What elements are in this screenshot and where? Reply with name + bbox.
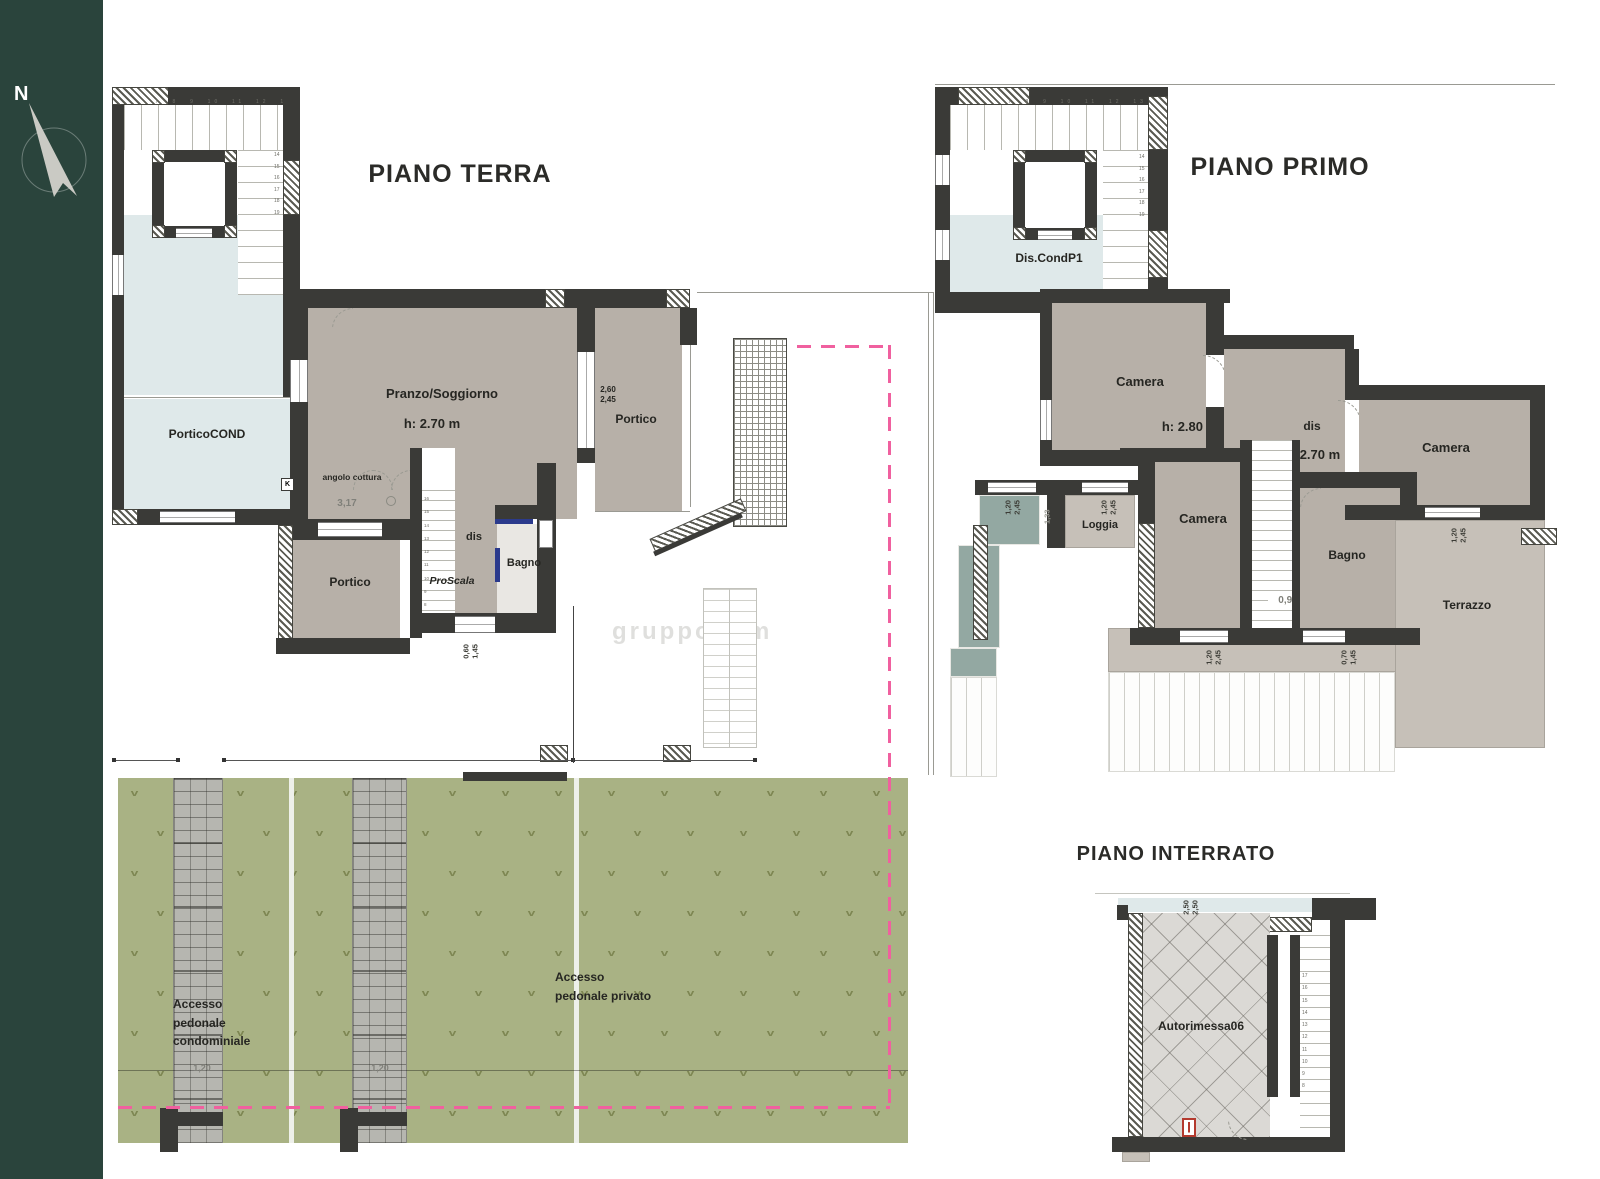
pillar-hatched [1521, 528, 1557, 545]
window [988, 482, 1036, 493]
stair-center-line [729, 588, 730, 748]
stair-step-numbers: 14 15 16 17 18 19 [274, 150, 280, 219]
stair-step-numbers: 16 15 14 13 12 11 10 9 8 7 [424, 492, 429, 625]
wall-hatched [224, 150, 237, 163]
cabinet-pivot [386, 496, 396, 506]
wall [1312, 898, 1376, 920]
open-edge-line [690, 345, 691, 507]
wall [298, 289, 690, 308]
wall-hatched [973, 525, 988, 640]
gate-wall [358, 1112, 407, 1126]
label-accesso-privato: Accesso pedonale privato [555, 968, 715, 1005]
wall-hatched [545, 289, 565, 308]
compass-north-label: N [14, 83, 28, 105]
window [935, 155, 950, 185]
room-label-bagno-p1: Bagno [1297, 548, 1397, 564]
wall-hatched [1013, 227, 1026, 240]
wall [463, 772, 567, 781]
dim-label: 1,20 [182, 1063, 222, 1075]
property-line [573, 606, 574, 763]
room-label-terrazzo: Terrazzo [1397, 598, 1537, 614]
stair-step-numbers: 14 15 16 17 18 19 [1139, 152, 1145, 221]
wall-hatched [152, 150, 165, 163]
dim-line [118, 1070, 908, 1071]
pergola-lines [1108, 672, 1395, 772]
dim-line [223, 760, 573, 761]
garden-divider [289, 778, 294, 1143]
dim-label: 1,33 [1042, 502, 1051, 532]
room-label-autorimessa: Autorimessa06 [1131, 1019, 1271, 1035]
wall [112, 295, 124, 509]
room-label-camera2: Camera [1386, 440, 1506, 457]
stair-void [1278, 935, 1290, 1087]
window [112, 255, 124, 295]
window-dims: 0,70 1,45 [1340, 642, 1359, 672]
boundary-dashed-pink [118, 1106, 890, 1109]
wall [935, 292, 1040, 313]
wall [1117, 905, 1128, 920]
stairs-condo [950, 105, 1148, 150]
room-portico-cond [124, 399, 290, 509]
gate-wall [340, 1108, 358, 1152]
room-portico-right [595, 308, 682, 512]
wall-hatched [278, 525, 293, 640]
dim-dot [112, 758, 116, 762]
wall-hatched [1138, 523, 1155, 628]
stair-step-numbers: 7 8 9 10 11 12 13 [1008, 97, 1147, 109]
sidebar-band: N [0, 0, 103, 1179]
stairs-external [703, 588, 757, 748]
wall [410, 448, 422, 638]
window-dims: 1,20 2,45 [1205, 642, 1224, 672]
room-label-bagno: Bagno [494, 556, 554, 570]
wall [935, 185, 950, 230]
stairs-internal [1252, 440, 1292, 660]
dim-line [573, 760, 755, 761]
floorplan-sheet: N gruppodom PIANO TERRA 7 8 9 10 11 12 1… [0, 0, 1600, 1179]
room-label-portico-bottom: Portico [300, 575, 400, 591]
lot-line [933, 292, 934, 775]
label-accesso-condominiale: Accesso pedonale condominiale [173, 995, 303, 1051]
gate-wall [160, 1108, 178, 1152]
window [1303, 630, 1345, 643]
wall [112, 105, 124, 255]
gate-wall [178, 1112, 223, 1126]
boundary-dashed-pink [797, 345, 890, 348]
wall [1040, 303, 1052, 400]
outline [1095, 893, 1350, 894]
stair-step-numbers: 7 8 9 10 11 12 13 [155, 97, 294, 109]
window [1425, 507, 1480, 518]
compass-rose-icon: N [0, 0, 103, 260]
wall-hatched [1084, 227, 1097, 240]
wall-hatched [1148, 96, 1168, 150]
k-marker: K [281, 478, 294, 491]
room-label-pranzo: Pranzo/Soggiorno [352, 386, 532, 403]
room-height-label: h: 2.70 m [357, 416, 507, 433]
room-label-loggia: Loggia [1060, 518, 1140, 532]
stairs-condo [124, 105, 283, 150]
door-dims: 0,60 1,45 [462, 636, 481, 666]
title-piano-interrato: PIANO INTERRATO [1046, 843, 1306, 866]
wall [290, 308, 308, 530]
doorway [160, 511, 235, 523]
wall [935, 87, 958, 105]
room-camera3 [1155, 462, 1252, 628]
wall [1120, 448, 1260, 462]
wall-hatched [1013, 150, 1026, 163]
stair-step-numbers: 17 16 15 14 13 12 11 10 9 8 [1302, 970, 1308, 1093]
wall [1345, 385, 1545, 400]
dim-line [935, 84, 1555, 85]
wall [1206, 303, 1224, 355]
room-label-proscala: ProScala [412, 575, 492, 589]
walkway-private [352, 778, 407, 1143]
wall [1530, 400, 1545, 520]
wall [1300, 472, 1400, 488]
wall-stub [1122, 1152, 1150, 1162]
wall [495, 505, 537, 519]
dim-dot [222, 758, 226, 762]
wall-hatched [224, 225, 237, 238]
open-edge-line [595, 511, 690, 512]
wall [935, 105, 950, 155]
room-label-camera1: Camera [1080, 374, 1200, 391]
wall [1224, 335, 1354, 349]
roof-outline [697, 292, 933, 293]
garden-divider [574, 778, 579, 1143]
doorway [455, 616, 495, 633]
room-label-dis-cond: Dis.CondP1 [989, 251, 1109, 267]
window [318, 522, 382, 537]
fixture-red [1182, 1118, 1196, 1137]
bath-fixture [539, 520, 553, 548]
boundary-dashed-pink [888, 345, 891, 1107]
dim-line [113, 760, 178, 761]
window [935, 230, 950, 260]
elevator-cab [1025, 162, 1085, 228]
dim-label: 2,50 2,50 [1182, 892, 1201, 922]
wall-hatched [112, 509, 138, 525]
wall-hatched [283, 160, 300, 215]
window-dims: 2,60 2,45 [592, 385, 624, 406]
wall-hatched [666, 289, 690, 308]
room-label-portico-cond: PorticoCOND [147, 427, 267, 443]
window [290, 360, 308, 402]
garden-plants: vvvvvvvvvvvvvvvvvvvvvvvvvvvvvvvvvvvvvvvv… [118, 778, 908, 1143]
wall [680, 308, 697, 345]
wall [1330, 920, 1345, 1147]
wall [1240, 440, 1252, 630]
elevator-cab [164, 162, 225, 226]
wall [1130, 628, 1420, 645]
balcony-deck [950, 648, 997, 677]
room-label-dis: dis [454, 530, 494, 544]
elevator-door [176, 228, 212, 238]
lot-line [928, 292, 929, 775]
wall [1040, 289, 1230, 303]
window [1082, 482, 1128, 493]
doorway [1040, 400, 1052, 440]
dim-dot [753, 758, 757, 762]
window-dims: 1,20 2,45 [1450, 520, 1469, 550]
pergola-lines [950, 677, 997, 777]
threshold-line [124, 397, 290, 398]
title-piano-terra: PIANO TERRA [330, 160, 590, 189]
wall-hatched [1084, 150, 1097, 163]
wall [577, 308, 595, 352]
window [1180, 630, 1228, 643]
dim-dot [176, 758, 180, 762]
stair-landing [422, 448, 455, 490]
title-piano-primo: PIANO PRIMO [1150, 153, 1410, 182]
wall [1206, 407, 1224, 450]
wall [276, 638, 410, 654]
dim-label: 1,20 [360, 1063, 400, 1075]
wall-hatched [152, 225, 165, 238]
walkway-condo [173, 778, 223, 1143]
dim-label: 3,17 [327, 497, 367, 510]
elevator-door [1038, 230, 1072, 240]
room-label-portico-right: Portico [586, 412, 686, 428]
wall [1112, 1137, 1345, 1152]
wall [1267, 935, 1278, 1097]
wall [1290, 935, 1300, 1097]
wall-hatched [1148, 230, 1168, 278]
window-dims: 1,20 2,45 [1004, 492, 1023, 522]
